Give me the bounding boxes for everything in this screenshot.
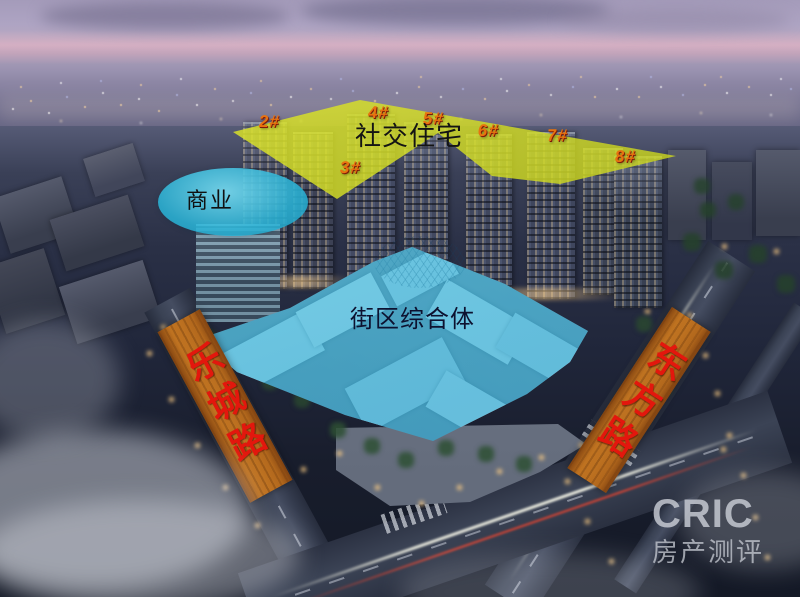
cloud [560, 8, 790, 32]
office-tower [196, 224, 280, 322]
building-marker-3: 3# [339, 158, 363, 178]
building-marker-8: 8# [614, 147, 638, 167]
background-building [668, 150, 706, 240]
residential-zone-label: 社交住宅 [355, 116, 463, 153]
background-building [712, 162, 752, 240]
cloud [40, 2, 290, 30]
mixed-use-zone-label: 街区综合体 [350, 299, 475, 334]
building-marker-7: 7# [546, 126, 570, 146]
street-trees [0, 0, 4, 4]
tower-8 [614, 156, 662, 308]
watermark-tagline: 房产测评 [652, 539, 764, 568]
sunset-band [0, 30, 800, 64]
watermark: CRIC 房产测评 [652, 492, 764, 568]
building-marker-6: 6# [477, 121, 501, 141]
watermark-brand: CRIC [652, 492, 764, 536]
background-building [756, 150, 800, 236]
aerial-rendering-scene: 街区综合体 商业 2# 3# 4# 5# 6# 7# 8# 社交住宅 乐城路 东… [0, 0, 800, 597]
commercial-zone-label: 商业 [186, 183, 234, 215]
building-marker-2: 2# [258, 112, 282, 132]
